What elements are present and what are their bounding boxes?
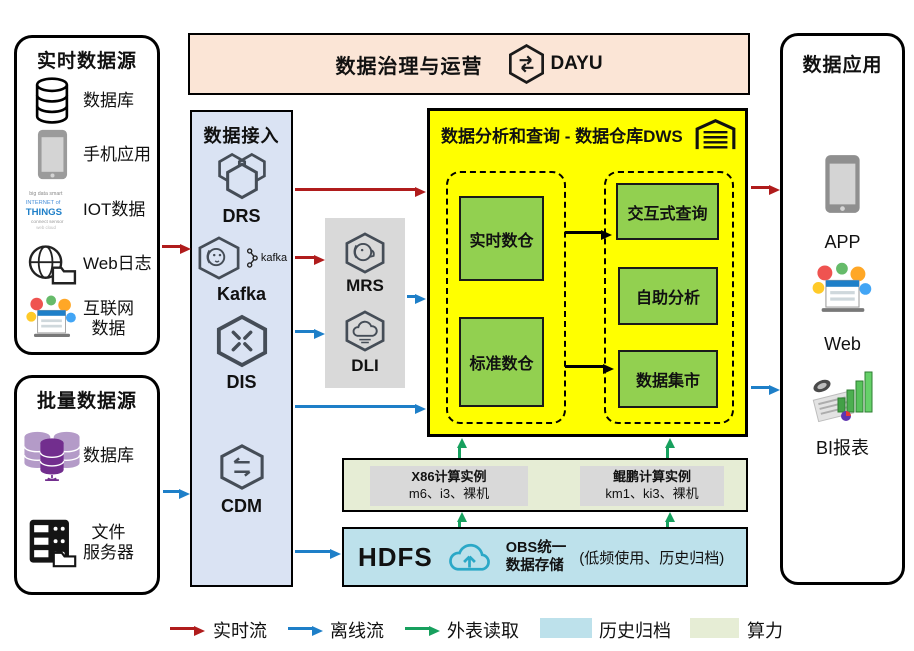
legend-label: 实时流 (213, 617, 267, 643)
arrow-dws-to-app (751, 186, 770, 189)
data-ingestion-title: 数据接入 (192, 122, 291, 148)
service-label: DLI (325, 356, 405, 376)
dws-panel: 数据分析和查询 - 数据仓库DWS 实时数仓 标准数仓 交互式查询 自助分析 数… (427, 108, 748, 437)
governance-banner: 数据治理与运营 DAYU (188, 33, 750, 95)
dayu-icon (508, 44, 545, 84)
legend-label: 外表读取 (447, 617, 519, 643)
instance-name: X86计算实例 (411, 469, 486, 486)
source-label: 互联网 数据 (83, 299, 134, 338)
internet-data-icon (21, 295, 83, 342)
kafka-icon-group: kafka (192, 236, 291, 280)
arrow-storage-to-compute-left (458, 521, 461, 527)
module-standard-warehouse: 标准数仓 (459, 317, 544, 407)
dayu-label: DAYU (550, 53, 602, 75)
legend-history-archive-swatch (540, 618, 592, 638)
instance-name: 鲲鹏计算实例 (613, 469, 691, 486)
dli-icon (325, 310, 405, 352)
service-label: DRS (192, 206, 291, 227)
service-label: MRS (325, 276, 405, 296)
realtime-sources-panel: 实时数据源 数据库 手机应用 (14, 35, 160, 355)
svg-text:THINGS: THINGS (26, 208, 63, 219)
dms-kafka-icon (196, 236, 242, 280)
instance-spec: m6、i3、裸机 (409, 486, 489, 503)
cloud-upload-icon (446, 539, 493, 576)
storage-note: (低频使用、历史归档) (579, 547, 724, 568)
processing-panel: MRS DLI (325, 218, 405, 388)
obs-label: OBS统一 数据存储 (506, 539, 566, 575)
bi-report-icon (783, 366, 902, 424)
source-label: IOT数据 (83, 200, 145, 220)
arrow-batch-sources-to-ingestion (163, 490, 180, 493)
data-applications-title: 数据应用 (783, 50, 902, 77)
service-label: CDM (192, 496, 291, 517)
module-label: 实时数仓 (469, 227, 533, 251)
legend-external-read-arrow (405, 627, 430, 630)
arrow-ingestion-to-dws (295, 405, 416, 408)
list-item: Web日志 (21, 237, 153, 292)
arrow-cdm-to-hdfs (295, 550, 331, 553)
arrow-storage-to-compute-right (666, 521, 669, 527)
arrow-kafka-to-mrs (295, 256, 315, 259)
source-label: Web日志 (83, 254, 152, 274)
module-data-mart: 数据集市 (618, 350, 718, 408)
arrow-realtime-to-query (565, 231, 602, 234)
module-realtime-warehouse: 实时数仓 (459, 196, 544, 281)
kafka-logo-text: kafka (261, 252, 287, 264)
app-label: BI报表 (783, 434, 902, 460)
svg-text:INTERNET of: INTERNET of (26, 200, 61, 206)
list-item: 互联网 数据 (21, 291, 153, 346)
database-icon (21, 76, 83, 125)
data-ingestion-panel: 数据接入 DRS (190, 110, 293, 587)
legend-label: 离线流 (330, 617, 384, 643)
svg-text:big data smart: big data smart (29, 191, 63, 197)
drs-icon (192, 150, 291, 202)
legend-label: 历史归档 (599, 617, 671, 643)
service-label: Kafka (192, 284, 291, 305)
arrow-compute-to-dws-right (666, 447, 669, 458)
realtime-sources-title: 实时数据源 (21, 46, 153, 73)
module-self-service-analysis: 自助分析 (618, 267, 718, 325)
mrs-icon (325, 232, 405, 274)
x86-instance: X86计算实例 m6、i3、裸机 (370, 466, 528, 506)
app-label: Web (783, 334, 902, 355)
arrow-drs-to-dws (295, 188, 416, 191)
list-item: 数据库 (21, 73, 153, 128)
batch-sources-title: 批量数据源 (21, 386, 153, 413)
arrow-dws-to-bi (751, 386, 770, 389)
hdfs-label: HDFS (358, 542, 433, 573)
module-label: 数据集市 (636, 367, 700, 391)
architecture-diagram: 实时数据源 数据库 手机应用 (0, 0, 914, 651)
source-label: 手机应用 (83, 145, 151, 165)
dis-icon (192, 314, 291, 368)
app-phone-icon (783, 154, 902, 214)
phone-icon (21, 129, 83, 180)
web-collage-icon (783, 262, 902, 318)
cdm-icon (192, 444, 291, 490)
module-label: 交互式查询 (627, 200, 707, 224)
legend-label: 算力 (747, 617, 783, 643)
service-label: DIS (192, 372, 291, 393)
list-item: big data smart INTERNET of THINGS connec… (21, 182, 153, 237)
arrow-compute-to-dws-left (458, 447, 461, 458)
dayu-brand: DAYU (508, 44, 602, 84)
kafka-logo: kafka (245, 236, 287, 280)
arrow-standard-to-mart (565, 365, 604, 368)
list-item: 文件 服务器 (21, 500, 153, 587)
dws-title: 数据分析和查询 - 数据仓库DWS (441, 122, 713, 147)
source-label: 数据库 (83, 91, 134, 111)
batch-sources-panel: 批量数据源 数据库 (14, 375, 160, 595)
kunpeng-instance: 鲲鹏计算实例 km1、ki3、裸机 (580, 466, 724, 506)
module-label: 自助分析 (636, 284, 700, 308)
instance-spec: km1、ki3、裸机 (605, 486, 698, 503)
svg-text:web cloud: web cloud (36, 226, 56, 231)
legend-offline-arrow (288, 627, 313, 630)
storage-panel: HDFS OBS统一 数据存储 (低频使用、历史归档) (342, 527, 748, 587)
list-item: 数据库 (21, 413, 153, 500)
app-label: APP (783, 232, 902, 253)
module-interactive-query: 交互式查询 (616, 183, 719, 240)
compute-panel: X86计算实例 m6、i3、裸机 鲲鹏计算实例 km1、ki3、裸机 (342, 458, 748, 512)
arrow-realtime-sources-to-ingestion (162, 245, 181, 248)
module-label: 标准数仓 (469, 350, 533, 374)
data-applications-panel: 数据应用 APP Web (780, 33, 905, 585)
arrow-dis-to-dli (295, 330, 315, 333)
iot-icon: big data smart INTERNET of THINGS connec… (21, 187, 83, 231)
web-log-icon (21, 242, 83, 286)
source-label: 数据库 (83, 446, 134, 466)
source-label: 文件 服务器 (83, 523, 134, 562)
governance-title: 数据治理与运营 (335, 50, 482, 79)
svg-text:connect sensor: connect sensor (31, 219, 64, 225)
legend-realtime-arrow (170, 627, 195, 630)
legend-compute-swatch (690, 618, 739, 638)
file-server-icon (21, 518, 83, 568)
list-item: 手机应用 (21, 128, 153, 183)
arrow-mrs-to-dws (407, 295, 416, 298)
batch-database-icon (21, 429, 83, 483)
warehouse-icon (694, 118, 737, 151)
